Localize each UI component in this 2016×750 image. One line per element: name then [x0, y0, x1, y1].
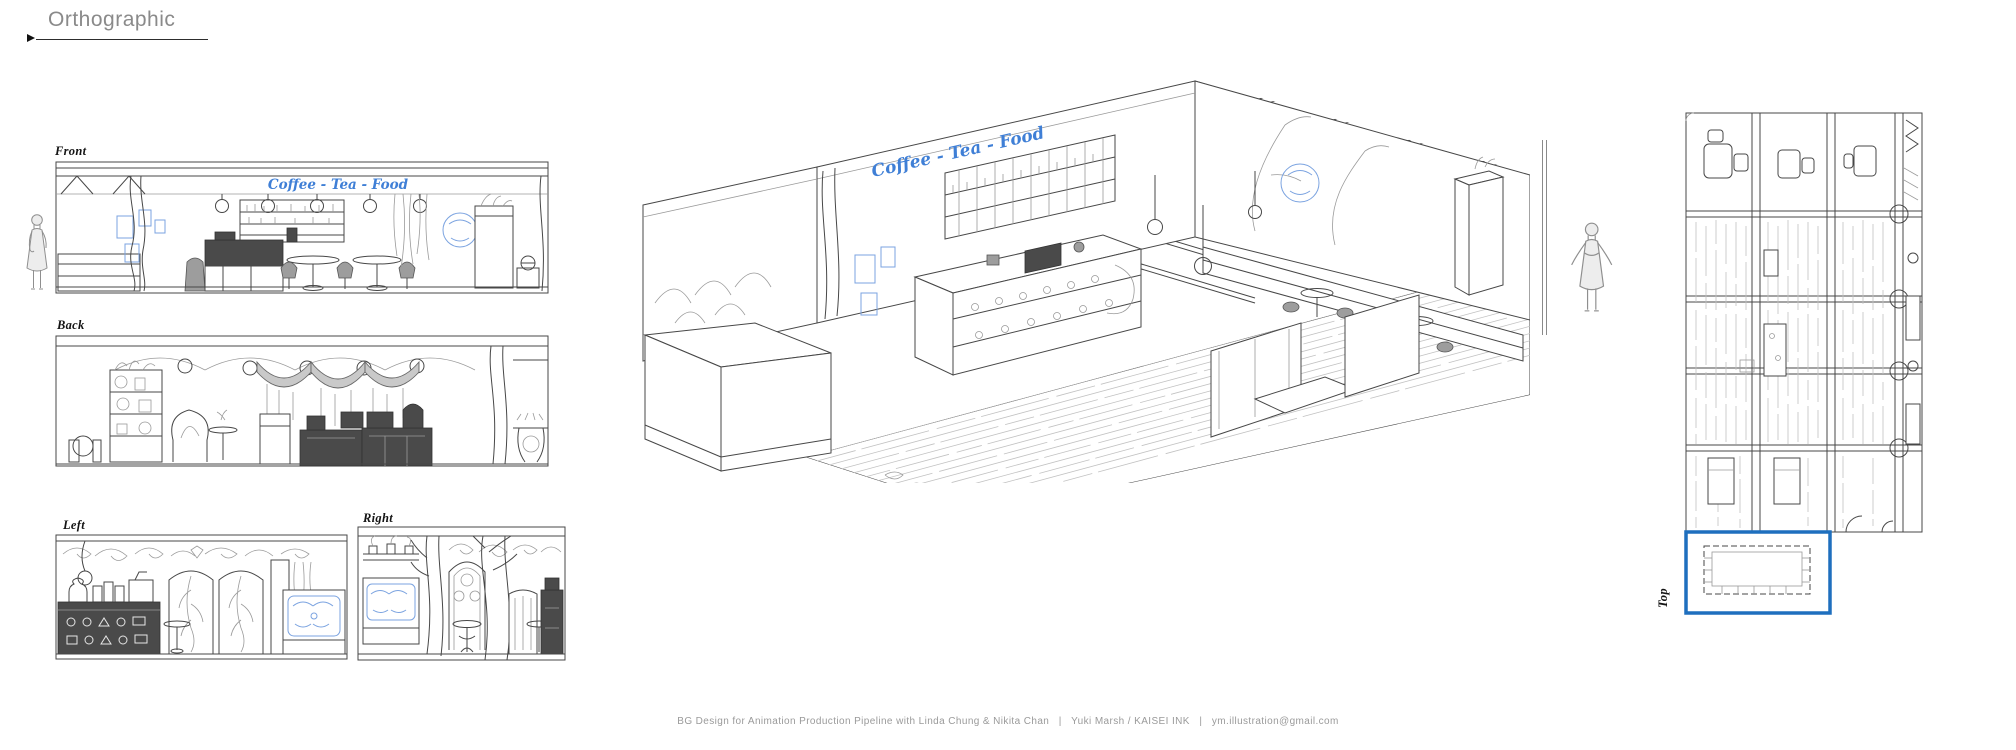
plan-tables — [1704, 130, 1876, 178]
back-view-panel — [55, 332, 550, 470]
planter-ledge — [363, 536, 419, 560]
storefront-sign-text: Coffee - Tea - Food — [268, 177, 409, 193]
scroll-frieze — [63, 546, 309, 561]
corner-booth — [645, 323, 831, 471]
espresso-machine — [205, 228, 297, 291]
right-view-panel — [357, 524, 567, 666]
pastry-display-counter — [58, 602, 160, 654]
leaf-armchair — [172, 410, 237, 462]
booth-blue-sketch — [363, 578, 419, 644]
leaf-panels — [169, 571, 263, 654]
page-title: Orthographic — [48, 8, 175, 32]
back-view-drawing — [55, 332, 550, 470]
front-view-label: Front — [55, 144, 86, 159]
tree-trunk-right — [540, 176, 543, 291]
booth-and-counter — [509, 578, 563, 654]
left-view-label: Left — [63, 518, 85, 533]
wall-corner-line — [1540, 140, 1550, 335]
isometric-view-drawing: Coffee - Tea - Food — [555, 55, 1530, 483]
front-view-panel: Coffee - Tea - Food — [55, 158, 550, 300]
tree-trunk — [130, 176, 145, 291]
dining-booths — [1211, 295, 1419, 437]
kitchen-counters — [300, 404, 432, 466]
arrow-right-icon — [27, 34, 35, 42]
credit-line: BG Design for Animation Production Pipel… — [0, 716, 2016, 727]
plan-beams-horizontal — [1686, 211, 1922, 451]
top-view-drawing — [1678, 106, 1930, 620]
birdcage — [403, 404, 423, 428]
grinder-machine — [517, 256, 539, 288]
front-bench — [58, 254, 140, 291]
back-view-label: Back — [57, 318, 85, 333]
tall-cabinet — [475, 194, 513, 288]
left-view-panel — [55, 532, 349, 668]
counter-top-items — [69, 572, 153, 602]
plan-highlight-booth — [1686, 532, 1830, 613]
tree-trunk — [490, 346, 507, 464]
sketch-round-mirror — [443, 213, 477, 247]
orthographic-sheet: Orthographic Front Back Left Right Top — [0, 0, 2016, 750]
isometric-view-panel: Coffee - Tea - Food — [555, 55, 1530, 483]
hanging-plants — [394, 194, 429, 268]
fridge — [260, 414, 290, 464]
title-underline — [36, 39, 208, 40]
top-view-panel — [1678, 106, 1930, 620]
pedestal-table — [164, 621, 190, 653]
right-view-drawing — [357, 524, 567, 666]
display-pillar — [1455, 157, 1503, 295]
scale-figure-left — [22, 212, 52, 302]
cafe-tables — [281, 256, 415, 291]
plant-shelf — [110, 361, 162, 462]
side-table — [513, 413, 548, 462]
roof-truss — [61, 176, 145, 194]
floor-grinder — [69, 436, 101, 462]
booth-blue-sketch — [283, 590, 345, 654]
coffee-sack — [185, 258, 205, 291]
plan-lamp-circles — [1890, 205, 1908, 457]
plan-furniture — [1708, 168, 1920, 532]
top-view-label: Top — [1656, 588, 1671, 608]
tulip-chairs — [281, 262, 415, 289]
left-view-drawing — [55, 532, 349, 668]
scale-figure-right — [1552, 220, 1632, 324]
plan-zigzag-shelf — [1906, 120, 1918, 152]
door-swing — [1846, 516, 1862, 532]
pedestal-table — [453, 621, 481, 653]
front-view-drawing: Coffee - Tea - Food — [55, 158, 550, 300]
